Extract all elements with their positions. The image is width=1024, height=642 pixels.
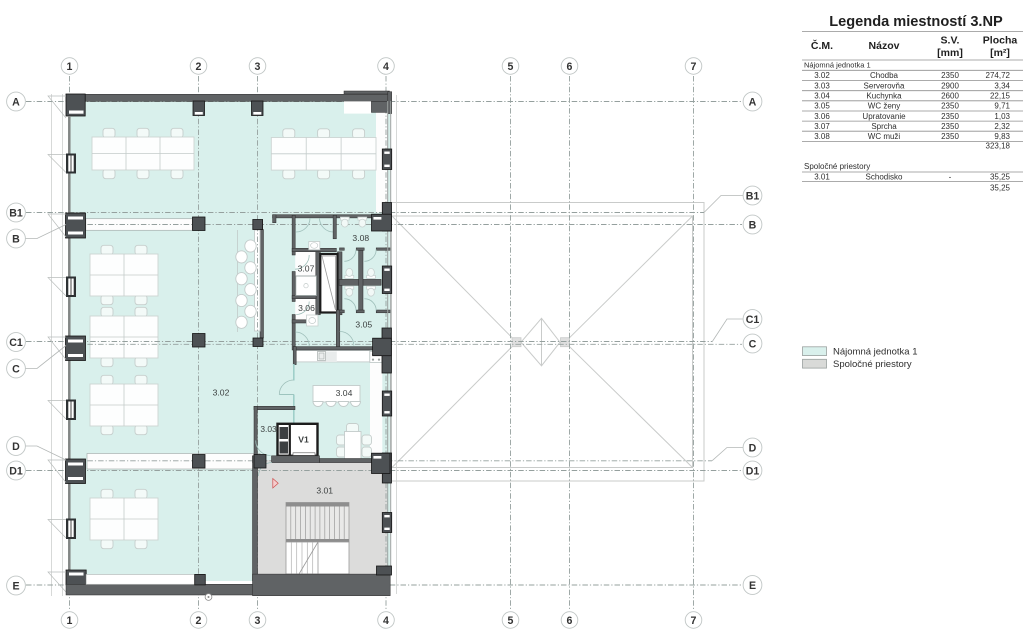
svg-text:3,34: 3,34 <box>994 81 1010 90</box>
svg-text:3.08: 3.08 <box>814 132 830 141</box>
svg-text:3.02: 3.02 <box>213 388 230 398</box>
svg-text:3: 3 <box>255 615 261 627</box>
svg-text:S.V.: S.V. <box>941 35 960 47</box>
svg-text:2: 2 <box>196 615 202 627</box>
svg-text:Spoločné priestory: Spoločné priestory <box>804 162 870 171</box>
svg-text:7: 7 <box>691 615 697 627</box>
svg-text:9,83: 9,83 <box>994 132 1010 141</box>
svg-text:3.05: 3.05 <box>355 320 372 330</box>
svg-text:[m²]: [m²] <box>990 47 1010 59</box>
svg-text:3.07: 3.07 <box>298 264 315 274</box>
svg-text:[mm]: [mm] <box>937 47 963 59</box>
svg-text:2350: 2350 <box>941 71 959 80</box>
svg-text:6: 6 <box>567 61 573 73</box>
svg-text:Nájomná jednotka 1: Nájomná jednotka 1 <box>833 347 918 358</box>
svg-text:3.06: 3.06 <box>814 112 830 121</box>
svg-text:A: A <box>749 96 757 108</box>
svg-text:D1: D1 <box>9 465 23 477</box>
svg-text:B1: B1 <box>9 207 23 219</box>
svg-text:1,03: 1,03 <box>994 112 1010 121</box>
svg-text:V1: V1 <box>298 435 309 445</box>
svg-text:2,32: 2,32 <box>994 122 1010 131</box>
svg-text:E: E <box>749 580 756 592</box>
svg-text:B1: B1 <box>746 190 760 202</box>
svg-text:4: 4 <box>383 615 389 627</box>
svg-text:323,18: 323,18 <box>986 142 1011 151</box>
svg-text:1: 1 <box>67 615 73 627</box>
svg-text:5: 5 <box>508 615 514 627</box>
svg-text:Chodba: Chodba <box>870 71 899 80</box>
svg-text:Č.M.: Č.M. <box>811 39 833 52</box>
svg-text:3.03: 3.03 <box>260 424 277 434</box>
svg-text:Kuchynka: Kuchynka <box>866 92 902 101</box>
svg-text:1: 1 <box>67 61 73 73</box>
svg-text:D: D <box>749 442 757 454</box>
svg-text:C1: C1 <box>746 314 760 326</box>
svg-text:35,25: 35,25 <box>990 184 1011 193</box>
svg-text:4: 4 <box>383 61 389 73</box>
svg-text:3: 3 <box>255 61 261 73</box>
svg-text:7: 7 <box>691 61 697 73</box>
svg-text:C1: C1 <box>9 337 23 349</box>
svg-text:35,25: 35,25 <box>990 172 1011 181</box>
svg-text:2: 2 <box>196 61 202 73</box>
svg-text:D1: D1 <box>746 465 760 477</box>
svg-text:3.08: 3.08 <box>352 233 369 243</box>
svg-text:274,72: 274,72 <box>986 71 1011 80</box>
svg-text:E: E <box>12 580 19 592</box>
svg-text:Sprcha: Sprcha <box>871 122 897 131</box>
svg-text:2600: 2600 <box>941 92 959 101</box>
svg-text:Schodisko: Schodisko <box>866 172 903 181</box>
svg-text:2900: 2900 <box>941 81 959 90</box>
svg-text:Plocha: Plocha <box>983 35 1018 47</box>
svg-text:-: - <box>949 172 952 181</box>
svg-text:D: D <box>12 441 20 453</box>
svg-text:3.05: 3.05 <box>814 102 830 111</box>
svg-text:3.06: 3.06 <box>298 303 315 313</box>
svg-text:2350: 2350 <box>941 132 959 141</box>
svg-text:2350: 2350 <box>941 112 959 121</box>
svg-text:C: C <box>12 363 20 375</box>
svg-text:9,71: 9,71 <box>994 102 1010 111</box>
svg-text:2350: 2350 <box>941 102 959 111</box>
svg-text:3.04: 3.04 <box>814 92 830 101</box>
svg-text:B: B <box>12 233 20 245</box>
svg-text:6: 6 <box>567 615 573 627</box>
svg-text:3.02: 3.02 <box>814 71 830 80</box>
svg-text:Upratovanie: Upratovanie <box>862 112 906 121</box>
svg-text:3.07: 3.07 <box>814 122 830 131</box>
svg-text:WC muži: WC muži <box>868 132 901 141</box>
svg-text:3.03: 3.03 <box>814 81 830 90</box>
svg-text:5: 5 <box>508 61 514 73</box>
svg-text:Názov: Názov <box>869 40 900 52</box>
svg-text:3.04: 3.04 <box>336 388 353 398</box>
svg-text:Legenda miestností 3.NP: Legenda miestností 3.NP <box>829 14 1003 30</box>
svg-text:C: C <box>749 338 757 350</box>
svg-text:A: A <box>12 96 20 108</box>
svg-text:3.01: 3.01 <box>814 172 830 181</box>
svg-text:Nájomná jednotka 1: Nájomná jednotka 1 <box>804 61 871 70</box>
svg-text:2350: 2350 <box>941 122 959 131</box>
svg-text:WC ženy: WC ženy <box>868 102 900 111</box>
svg-text:22,15: 22,15 <box>990 92 1011 101</box>
svg-text:Serverovňa: Serverovňa <box>864 81 905 90</box>
svg-text:3.01: 3.01 <box>316 486 333 496</box>
svg-text:Spoločné priestory: Spoločné priestory <box>833 359 912 370</box>
svg-text:B: B <box>749 219 757 231</box>
